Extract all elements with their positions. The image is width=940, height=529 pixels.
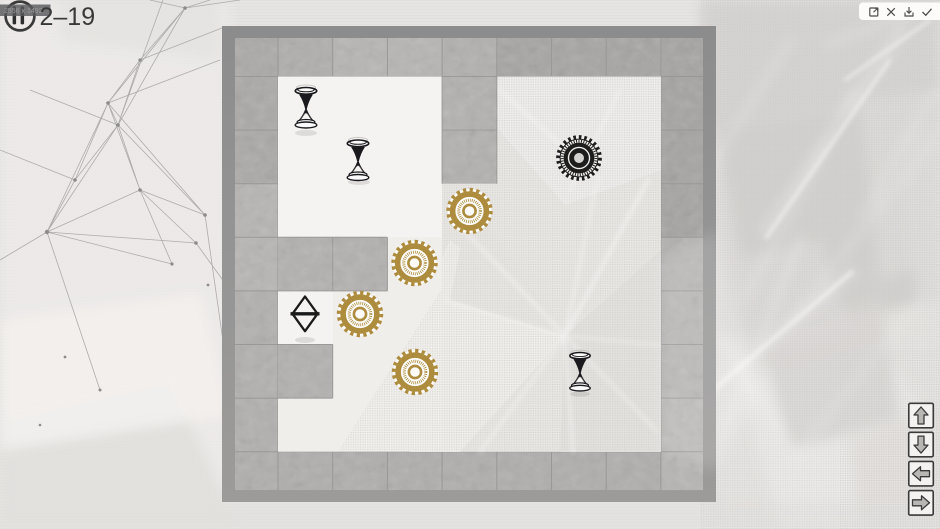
svg-text:2556 x 1492: 2556 x 1492 <box>4 8 43 15</box>
svg-text:2–19: 2–19 <box>40 3 96 31</box>
